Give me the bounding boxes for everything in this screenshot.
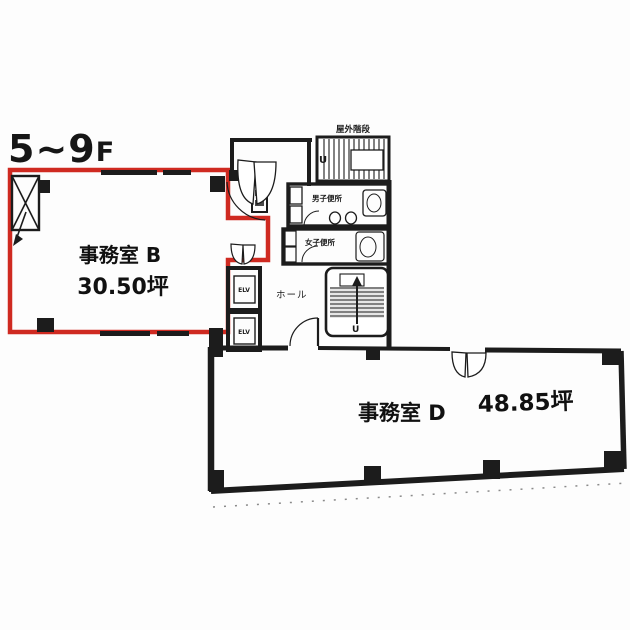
- urinal-icon: [346, 212, 357, 224]
- internal-staircase: U: [326, 268, 388, 336]
- hall-door: [290, 318, 318, 346]
- office-d-area: 48.85坪: [477, 389, 574, 418]
- urinal-icon: [330, 212, 341, 224]
- arrow-icon: [13, 234, 23, 246]
- door-arc: [304, 211, 319, 226]
- office-d-name: 事務室 D: [358, 401, 446, 425]
- shaft-x-box: [12, 176, 39, 246]
- stair-up-internal-label: U: [352, 325, 359, 335]
- womens-toilet-label: 女子便所: [305, 237, 335, 247]
- office-b-area: 30.50坪: [77, 275, 169, 300]
- office-d-entry-doors: [452, 352, 486, 377]
- outdoor-staircase: 屋外階段 U: [317, 124, 389, 181]
- lobby-double-door: [229, 160, 276, 204]
- floor-label-main: 5~9: [8, 127, 96, 171]
- floor-label-suffix: F: [96, 137, 115, 168]
- elevator-1-label: ELV: [238, 287, 250, 294]
- stair-up-outdoor-label: U: [319, 155, 327, 166]
- womens-toilet-room: 女子便所: [283, 229, 389, 264]
- floor-label: 5~9F: [8, 127, 115, 171]
- mens-toilet-room: 男子便所: [288, 184, 389, 226]
- hall-label: ホール: [276, 290, 308, 301]
- office-b-name: 事務室 B: [79, 243, 161, 267]
- outdoor-stairs-label: 屋外階段: [336, 124, 371, 135]
- mens-toilet-label: 男子便所: [312, 193, 342, 203]
- elevator-1: ELV: [228, 268, 260, 310]
- elevator-2: ELV: [228, 312, 260, 350]
- elevator-2-label: ELV: [238, 329, 250, 336]
- door-arc: [302, 246, 318, 262]
- floor-plan-drawing: 5~9F 事務室 B 30.50坪: [0, 0, 630, 630]
- floor-plan: 5~9F 事務室 B 30.50坪: [0, 0, 630, 630]
